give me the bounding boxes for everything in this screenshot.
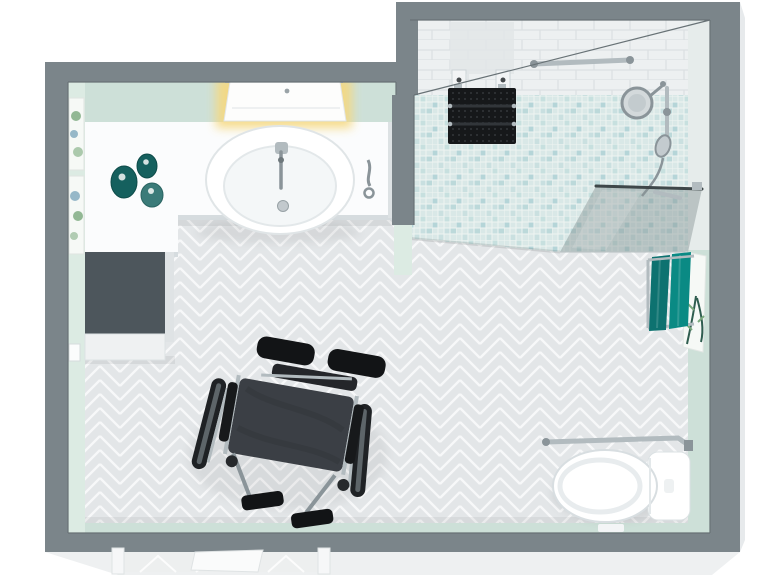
top-left-wall: [45, 62, 416, 82]
mirror-logo-dot: [285, 89, 290, 94]
partition-wall: [392, 95, 414, 225]
top-right-wall: [398, 2, 740, 20]
left-wall: [45, 62, 68, 552]
door-jamb-right: [318, 548, 330, 574]
glass-wall-bracket: [692, 182, 702, 190]
door-leaf: [191, 550, 263, 572]
door-jamb-left: [112, 548, 124, 574]
toilet-flush-button: [664, 479, 674, 493]
storage-cabinet-front: [85, 334, 165, 360]
floorplan-stage: [0, 0, 768, 576]
wall-art-prints: [69, 98, 84, 254]
storage-cabinet-side: [165, 252, 174, 342]
bottom-wall: [45, 533, 740, 552]
mirror-panel: [224, 82, 346, 121]
floorplan-render: [0, 0, 768, 576]
basin-drain: [278, 201, 289, 212]
right-wall: [710, 2, 740, 552]
light-switch: [69, 344, 80, 361]
bottom-wall-face: [85, 523, 688, 533]
right-exterior-face: [740, 2, 745, 552]
storage-cabinet-top: [85, 252, 165, 334]
frosted-panel: [450, 22, 514, 74]
partition-end-face: [394, 225, 412, 275]
toilet-floor-plate: [598, 524, 624, 532]
basin-faucet-handle: [278, 157, 284, 163]
